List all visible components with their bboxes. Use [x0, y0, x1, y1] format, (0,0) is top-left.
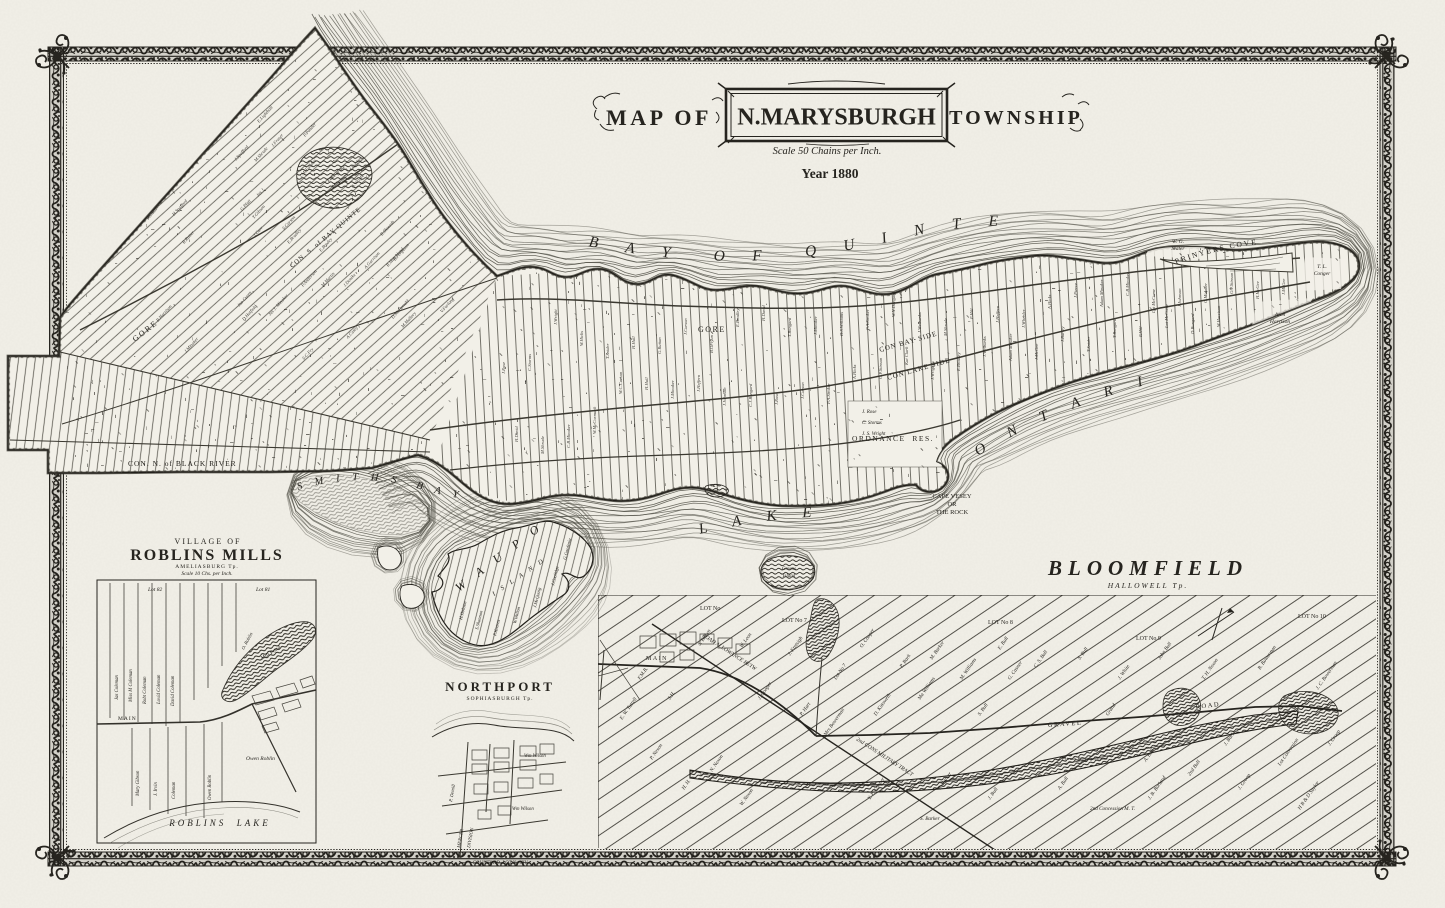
- svg-text:H.David: H.David: [514, 426, 519, 443]
- svg-text:T.Bongard: T.Bongard: [1112, 318, 1117, 338]
- svg-text:Conger: Conger: [1314, 271, 1331, 277]
- svg-text:T. L.: T. L.: [1317, 264, 1327, 270]
- svg-text:Scale 10 Chs. per Inch.: Scale 10 Chs. per Inch.: [181, 571, 232, 577]
- svg-text:Slater: Slater: [1171, 246, 1185, 252]
- svg-text:Friends Burying Ground: Friends Burying Ground: [1061, 756, 1108, 761]
- svg-text:E.Bradley: E.Bradley: [956, 352, 961, 372]
- svg-text:TOWNSHIP: TOWNSHIP: [949, 107, 1083, 129]
- svg-text:NORTHPORT: NORTHPORT: [445, 679, 555, 694]
- svg-text:MAP OF: MAP OF: [606, 105, 712, 130]
- svg-text:LOT No: LOT No: [700, 606, 720, 612]
- svg-text:J.Minaker: J.Minaker: [670, 380, 675, 399]
- svg-text:Lot McCome: Lot McCome: [1151, 289, 1156, 314]
- svg-text:Adam Minaker: Adam Minaker: [1099, 279, 1104, 308]
- svg-text:J.Carson: J.Carson: [800, 382, 805, 399]
- svg-text:LOT No 7: LOT No 7: [782, 618, 807, 624]
- svg-text:J.McGee: J.McGee: [1034, 344, 1039, 360]
- svg-text:Island: Island: [782, 574, 796, 579]
- svg-text:Owen Roblin: Owen Roblin: [208, 774, 213, 800]
- svg-text:ORDNANCE RES.: ORDNANCE RES.: [852, 434, 934, 443]
- svg-text:VILLAGE OF: VILLAGE OF: [175, 537, 242, 546]
- svg-text:HALLOWELL Tp.: HALLOWELL Tp.: [1107, 581, 1188, 590]
- svg-text:N.MARYSBURGH: N.MARYSBURGH: [737, 105, 936, 131]
- svg-text:D.Bongard: D.Bongard: [1190, 313, 1195, 335]
- svg-text:P.A.Stroker: P.A.Stroker: [826, 383, 831, 405]
- svg-text:Mary Gibson: Mary Gibson: [136, 770, 141, 797]
- svg-text:Owen Roblin: Owen Roblin: [246, 756, 275, 762]
- svg-text:Adam Minaker: Adam Minaker: [1008, 333, 1013, 362]
- svg-text:F.Hill: F.Hill: [1138, 326, 1143, 338]
- svg-text:LOT No 9: LOT No 9: [1136, 636, 1161, 642]
- svg-text:Jas Coleman: Jas Coleman: [115, 674, 120, 700]
- svg-text:LOT No 10: LOT No 10: [1298, 614, 1326, 620]
- svg-text:J.Pierce: J.Pierce: [1073, 283, 1078, 298]
- svg-text:H.Hull: H.Hull: [631, 336, 636, 350]
- svg-text:Greens: Greens: [782, 567, 796, 572]
- svg-text:B.OFlyun: B.OFlyun: [709, 334, 714, 353]
- svg-text:Lovid Coleman: Lovid Coleman: [157, 674, 162, 705]
- svg-text:Scale 50 Chains per Inch.: Scale 50 Chains per Inch.: [773, 146, 882, 157]
- svg-text:J.Heffern: J.Heffern: [696, 374, 701, 392]
- svg-text:MAIN: MAIN: [646, 656, 668, 662]
- svg-text:J.Burley: J.Burley: [1060, 326, 1065, 342]
- svg-text:C.B.Minaker: C.B.Minaker: [566, 424, 571, 448]
- svg-text:Wm Wilson: Wm Wilson: [512, 807, 534, 812]
- svg-text:T.Snider: T.Snider: [605, 343, 610, 359]
- svg-text:David Coleman: David Coleman: [171, 675, 176, 707]
- svg-text:C.B.Minaker: C.B.Minaker: [1125, 272, 1130, 296]
- svg-text:ROBLINS LAKE: ROBLINS LAKE: [168, 818, 271, 828]
- svg-text:Harrison: Harrison: [1269, 319, 1290, 325]
- svg-text:F.Hill: F.Hill: [969, 308, 974, 320]
- svg-text:J.Wright: J.Wright: [553, 309, 558, 325]
- svg-text:Coleman: Coleman: [172, 781, 177, 799]
- svg-text:MAIN: MAIN: [118, 716, 137, 722]
- svg-text:J.Johnson: J.Johnson: [1177, 288, 1182, 307]
- svg-text:H.Hull: H.Hull: [644, 377, 649, 391]
- svg-text:2nd Concession M. T.: 2nd Concession M. T.: [1090, 806, 1135, 812]
- svg-text:W.Harrison: W.Harrison: [1216, 305, 1221, 327]
- svg-text:ROBLINS MILLS: ROBLINS MILLS: [130, 547, 284, 564]
- svg-text:J.Johnson: J.Johnson: [722, 387, 727, 406]
- svg-text:C.Storms: C.Storms: [527, 354, 532, 371]
- svg-text:OR: OR: [947, 501, 957, 508]
- svg-text:Lot 81: Lot 81: [255, 587, 270, 593]
- svg-text:Robt Coleman: Robt Coleman: [143, 676, 148, 705]
- svg-text:Arch: Arch: [1274, 312, 1286, 318]
- svg-text:J.Heffern: J.Heffern: [995, 305, 1000, 323]
- svg-text:M.Shrude: M.Shrude: [540, 436, 545, 455]
- svg-text:Wm Wilson: Wm Wilson: [524, 754, 546, 759]
- svg-text:W. G.: W. G.: [1172, 239, 1184, 245]
- svg-text:S. Barker: S. Barker: [920, 816, 941, 822]
- svg-text:COUNTY RD. LOT No XIV: COUNTY RD. LOT No XIV: [472, 861, 528, 866]
- svg-text:H.McGee: H.McGee: [1255, 281, 1260, 300]
- svg-text:J.McGee: J.McGee: [1281, 279, 1286, 295]
- svg-text:W.N.Dangard: W.N.Dangard: [891, 291, 896, 317]
- svg-text:J.Wheeler: J.Wheeler: [1021, 309, 1026, 328]
- svg-text:W.Hicks: W.Hicks: [579, 331, 584, 346]
- svg-text:E.Bradley: E.Bradley: [735, 308, 740, 328]
- svg-text:G.P.Stinson: G.P.Stinson: [1229, 272, 1234, 294]
- svg-text:J.Rose: J.Rose: [501, 362, 506, 374]
- svg-text:H.David: H.David: [761, 305, 766, 322]
- svg-text:J.Minaker: J.Minaker: [813, 316, 818, 335]
- svg-text:Year 1880: Year 1880: [801, 166, 858, 181]
- svg-text:T.Bongard: T.Bongard: [787, 317, 792, 337]
- svg-text:A.Hicks: A.Hicks: [852, 364, 857, 380]
- svg-text:J.Carson: J.Carson: [683, 318, 688, 335]
- svg-text:J. Rose: J. Rose: [862, 410, 877, 415]
- svg-text:T.Snider: T.Snider: [1086, 336, 1091, 352]
- svg-text:SOPHIASBURGH Tp.: SOPHIASBURGH Tp.: [467, 696, 534, 702]
- svg-text:M.Shrude: M.Shrude: [943, 318, 948, 337]
- svg-text:W.McCormack: W.McCormack: [592, 406, 597, 434]
- svg-text:J.Rose: J.Rose: [774, 393, 779, 405]
- svg-text:Lot McCome: Lot McCome: [1164, 304, 1169, 329]
- svg-text:J.Welbanks: J.Welbanks: [917, 312, 922, 333]
- svg-text:LOT No 8: LOT No 8: [988, 620, 1013, 626]
- svg-text:J.Wright: J.Wright: [930, 364, 935, 380]
- svg-text:G.Minaker: G.Minaker: [1203, 283, 1208, 303]
- svg-text:A.Hicks: A.Hicks: [1047, 294, 1052, 310]
- svg-text:CAPE VESEY: CAPE VESEY: [932, 493, 971, 500]
- svg-text:Miss M Coleman: Miss M Coleman: [129, 669, 134, 703]
- svg-text:W.C.Carson: W.C.Carson: [618, 371, 623, 394]
- svg-text:D.S.Williams: D.S.Williams: [839, 312, 844, 337]
- svg-text:GORE: GORE: [698, 325, 726, 334]
- svg-text:G.Ruttan: G.Ruttan: [657, 337, 662, 354]
- svg-text:CON. N. of BLACK RIVER: CON. N. of BLACK RIVER: [128, 459, 237, 468]
- svg-text:G.P.Stinson: G.P.Stinson: [878, 357, 883, 379]
- svg-text:J.Welbanks: J.Welbanks: [982, 336, 987, 357]
- svg-text:P.A.Stroker: P.A.Stroker: [865, 309, 870, 331]
- svg-text:Kat Clark: Kat Clark: [904, 346, 909, 366]
- svg-text:BLOOMFIELD: BLOOMFIELD: [1047, 556, 1248, 580]
- svg-text:THE ROCK: THE ROCK: [936, 509, 969, 516]
- svg-text:C.J.Bongard: C.J.Bongard: [748, 383, 753, 407]
- svg-text:AMELIASBURG Tp.: AMELIASBURG Tp.: [175, 564, 239, 570]
- svg-text:J. Irvin: J. Irvin: [154, 782, 159, 796]
- svg-text:Lot 82: Lot 82: [147, 587, 162, 593]
